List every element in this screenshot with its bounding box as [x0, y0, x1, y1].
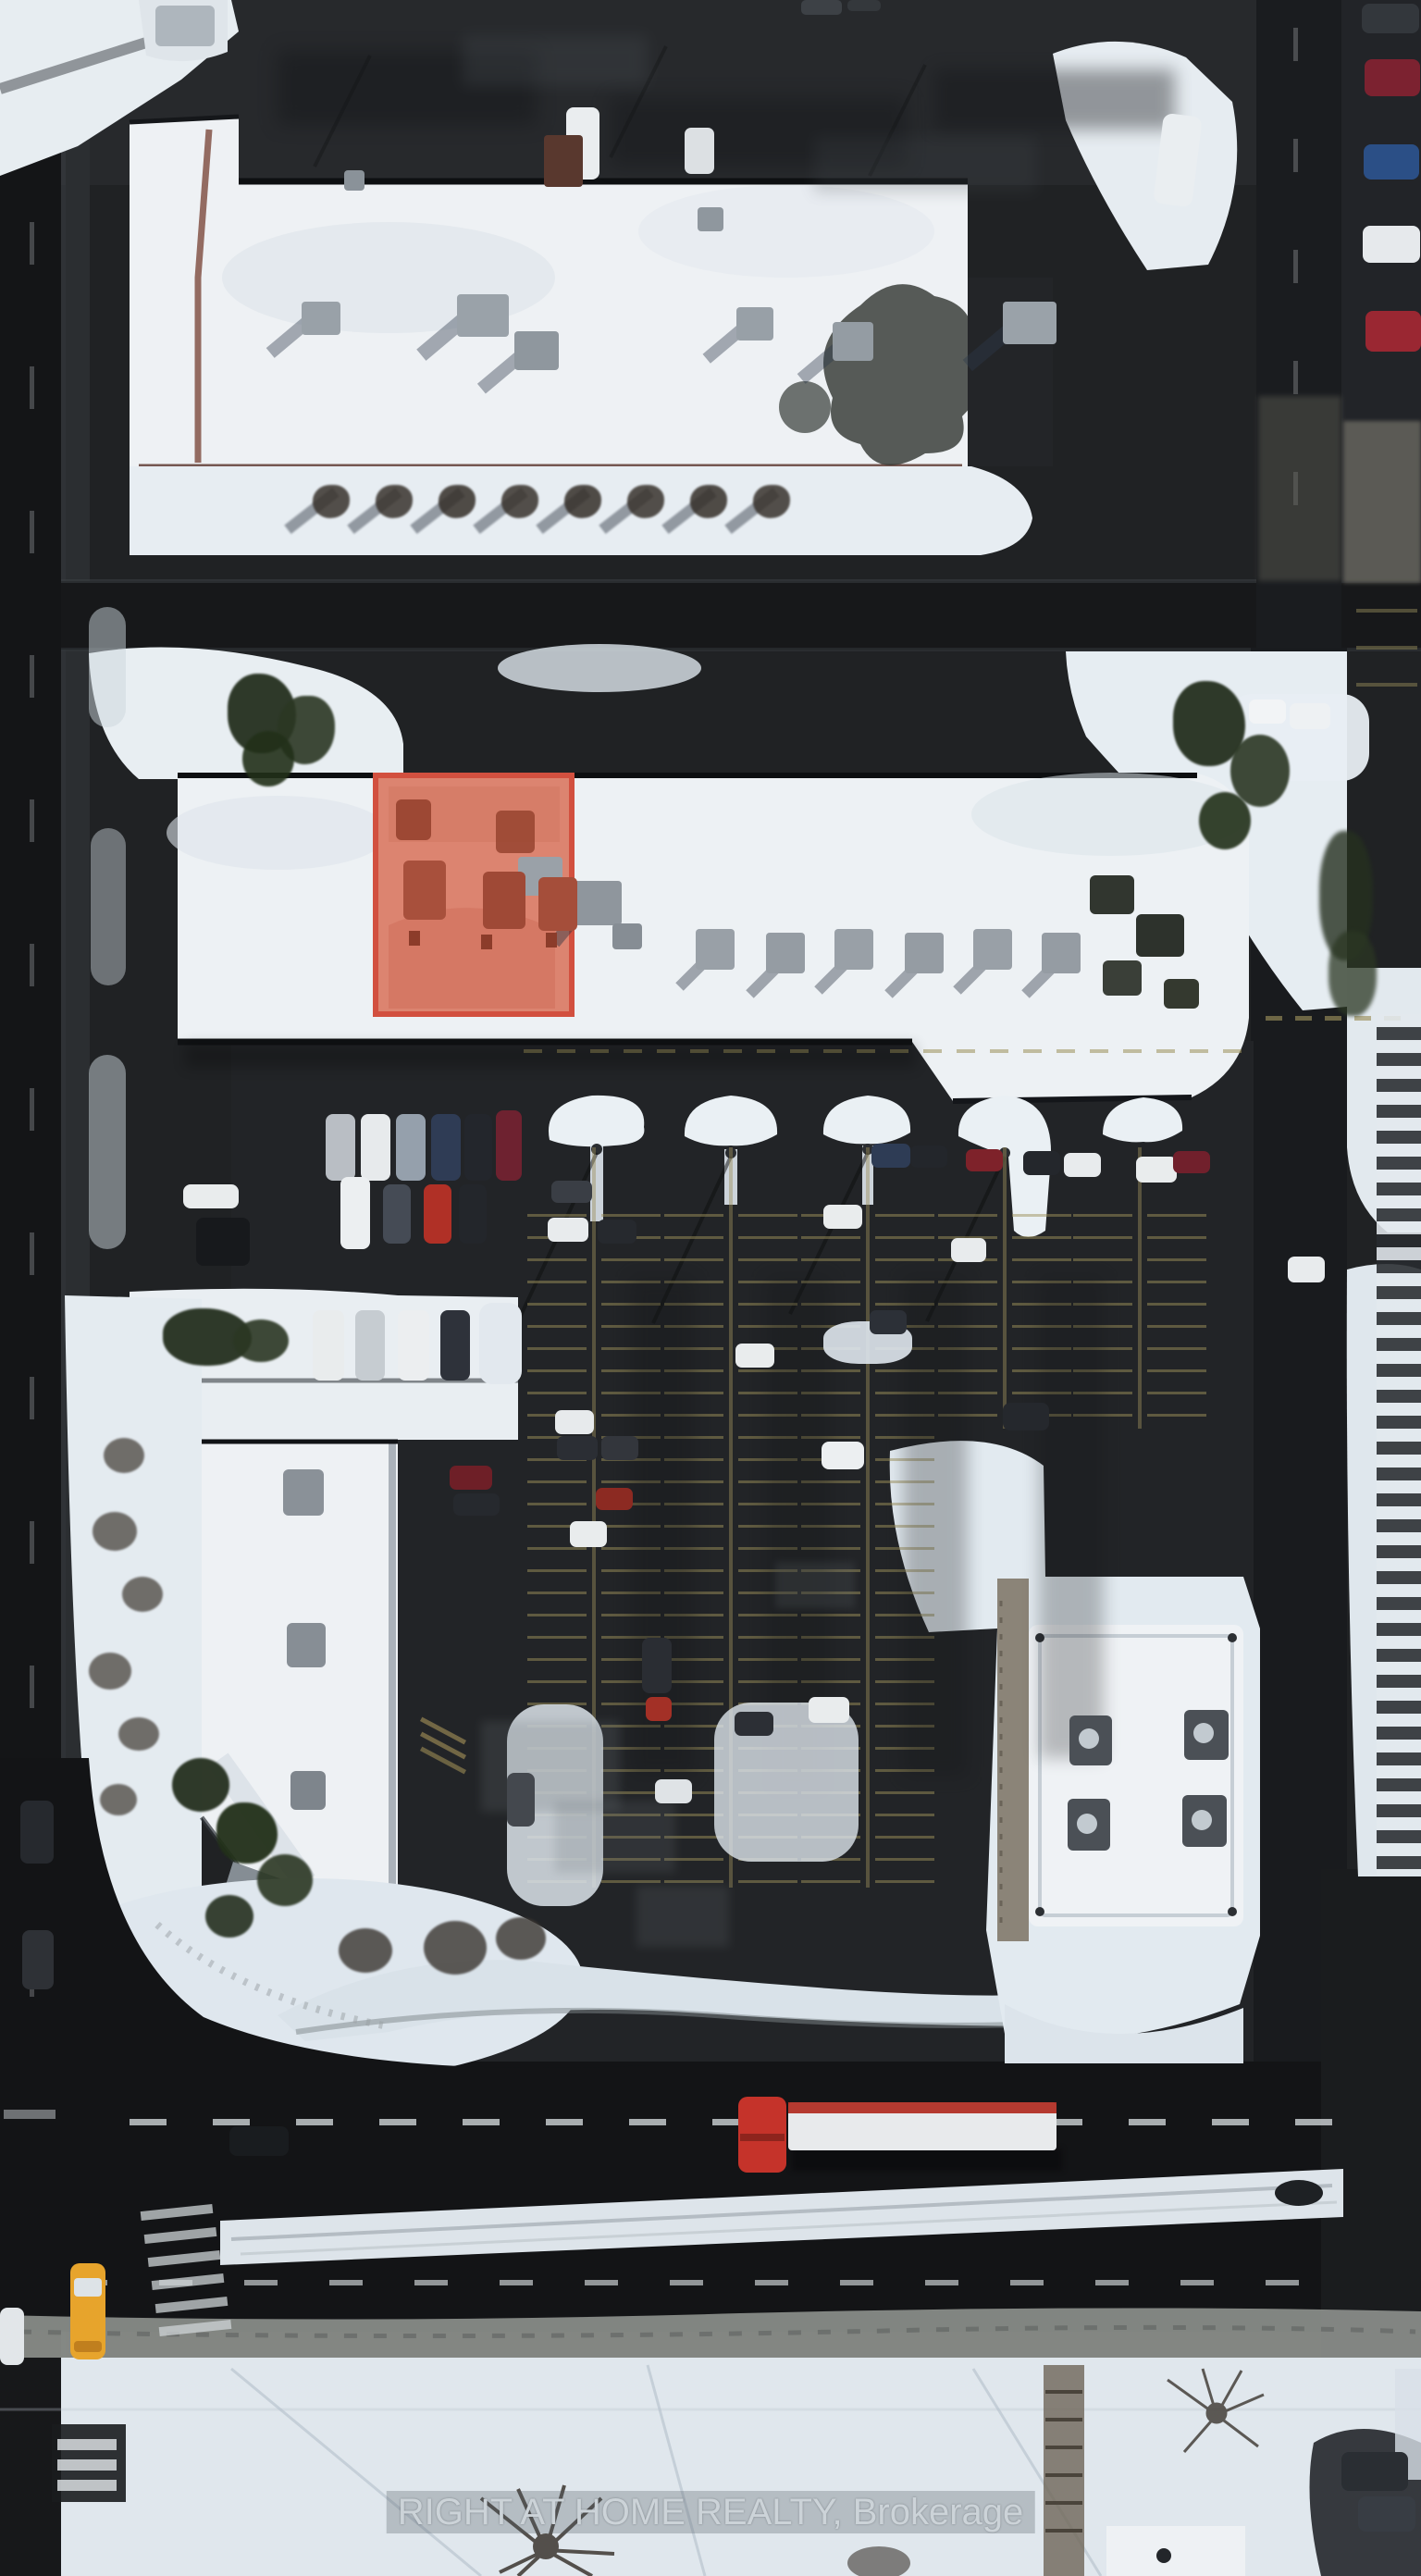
stall-line [527, 1214, 587, 1217]
car [20, 1801, 54, 1864]
car [22, 1930, 54, 1989]
car [396, 1114, 426, 1181]
conifer-tree [205, 1895, 253, 1938]
stall-line [875, 1236, 934, 1239]
car [642, 1638, 672, 1693]
car [464, 1114, 492, 1181]
rooftop-unit [696, 929, 735, 970]
bare-tree [424, 1921, 487, 1975]
car [1249, 700, 1286, 724]
car [910, 1146, 947, 1168]
car [1363, 226, 1420, 263]
lane-dash [840, 2280, 873, 2285]
sidewalk-patch [1343, 421, 1421, 583]
lane-dash [463, 2119, 500, 2125]
rooftop-unit [514, 331, 559, 370]
car [601, 1436, 638, 1460]
car [229, 2126, 289, 2156]
stall-line [664, 1258, 723, 1261]
stall-line [875, 1258, 934, 1261]
lane-dash [30, 222, 34, 265]
car [1064, 1153, 1101, 1177]
lane-dash [585, 2280, 618, 2285]
car [655, 1779, 692, 1803]
rooftop-stack [344, 170, 365, 191]
stall-line [738, 1236, 797, 1239]
conifer-tree [1328, 931, 1377, 1016]
car [735, 1344, 774, 1368]
dirt-smudge [481, 1721, 620, 1812]
roadside-gray [1258, 396, 1341, 581]
stall-line [601, 1880, 661, 1883]
car [479, 1303, 522, 1384]
stall-line [875, 1214, 934, 1217]
stall-line [1147, 1281, 1206, 1283]
rooftop-unit [457, 294, 509, 337]
bare-tree [496, 1917, 546, 1960]
terrain-layer [0, 0, 1421, 2576]
lane-dash [213, 2119, 250, 2125]
stall-line [664, 1236, 723, 1239]
stall-line [1147, 1392, 1206, 1394]
shrub [89, 1653, 131, 1690]
car [548, 1218, 588, 1242]
car [557, 1436, 598, 1460]
car [555, 1410, 594, 1434]
rooftop-fan [1192, 1810, 1212, 1830]
rooftop-unit [612, 923, 642, 949]
lane-patch [814, 137, 1036, 192]
stall-line [1147, 1236, 1206, 1239]
rooftop-unit [572, 881, 622, 925]
lane-dash [30, 799, 34, 842]
car [646, 1697, 672, 1721]
lane-dash [755, 2280, 788, 2285]
stall-line [527, 1636, 587, 1639]
truck-trailer-stripe [788, 2102, 1056, 2113]
truck-shadow [792, 2149, 1062, 2171]
car [801, 0, 842, 15]
car [1365, 311, 1421, 352]
lane-dash [30, 1232, 34, 1275]
watermark-text: RIGHT AT HOME REALTY, Brokerage [387, 2491, 1035, 2533]
conifer-tree [257, 1854, 313, 1906]
car [450, 1466, 492, 1490]
lane-dash [1266, 1016, 1282, 1021]
rooftop-unit [396, 799, 431, 840]
lane-dash [1293, 361, 1298, 394]
stall-line [875, 1858, 934, 1861]
lane-dash [1223, 1049, 1242, 1053]
car [1023, 1151, 1060, 1175]
stall-line [1012, 1236, 1071, 1239]
rooftop-unit [1136, 914, 1184, 957]
stall-line [938, 1214, 997, 1217]
car [361, 1114, 390, 1181]
lane-dash [1295, 1016, 1312, 1021]
lane-dash [957, 1049, 975, 1053]
rooftop-unit [403, 861, 446, 920]
lane-dash [1123, 1049, 1142, 1053]
lane-dash [1180, 2280, 1214, 2285]
stall-line [801, 1258, 860, 1261]
car [398, 1310, 429, 1381]
rooftop-unit [973, 929, 1012, 970]
rooftop-unit [496, 811, 535, 853]
rooftop-unit [1003, 302, 1056, 344]
lane-dash [30, 1521, 34, 1564]
lane-dash [1023, 1049, 1042, 1053]
car [870, 1310, 907, 1334]
shrub [104, 1438, 144, 1473]
stall-line [1012, 1214, 1071, 1217]
car [453, 1493, 500, 1516]
car [570, 1521, 607, 1547]
lane-dash [30, 511, 34, 553]
right-stalls-snow [1377, 1014, 1421, 1875]
rooftop-unit [290, 1771, 326, 1810]
stall-line [1147, 1369, 1206, 1372]
bus-hood [74, 2341, 102, 2352]
rooftop-unit [1090, 875, 1134, 914]
stall-line [527, 1303, 587, 1306]
stall-line [738, 1880, 797, 1883]
lane-dash [1190, 1049, 1208, 1053]
stall-line [527, 1281, 587, 1283]
rooftop-stack [698, 207, 723, 231]
lane-dash [244, 2280, 278, 2285]
building-shadow [185, 1044, 916, 1068]
car [424, 1184, 451, 1244]
rooftop-unit [736, 307, 773, 341]
shrub [100, 1784, 137, 1815]
car [596, 1488, 633, 1510]
stall-line [527, 1547, 587, 1550]
lane-dash [670, 2280, 703, 2285]
car [383, 1184, 411, 1244]
stall-line [1147, 1325, 1206, 1328]
car [507, 1773, 535, 1827]
stall-line [1012, 1258, 1071, 1261]
car [196, 1218, 250, 1266]
stall-center-line [866, 1147, 870, 1888]
stall-line [527, 1658, 587, 1661]
shrub [93, 1512, 137, 1551]
car [0, 2308, 24, 2365]
lane-dash [923, 1049, 942, 1053]
conifer-tree [172, 1758, 229, 1812]
car [340, 1177, 370, 1249]
lane-dash [1156, 1049, 1175, 1053]
lane-dash [500, 2280, 533, 2285]
snow-patch [89, 607, 126, 727]
stall-line [1147, 1214, 1206, 1217]
car [847, 0, 881, 11]
stall-line [601, 1258, 661, 1261]
bus-windshield [74, 2278, 102, 2297]
aisle-shade [1039, 1277, 1104, 1758]
snow-patch [91, 828, 126, 985]
shrub [118, 1717, 159, 1751]
conifer-tree [1199, 792, 1251, 849]
rooftop-unit [905, 933, 944, 973]
stall-line [738, 1258, 797, 1261]
rooftop-unit [302, 302, 340, 335]
stall-center-line [1138, 1147, 1142, 1429]
stall-line [1147, 1258, 1206, 1261]
lane-dash [30, 1666, 34, 1708]
stall-line [527, 1503, 587, 1505]
stall-line [527, 1480, 587, 1483]
lane-mottle [934, 69, 1175, 130]
car [809, 1697, 849, 1723]
stall-line [1147, 1347, 1206, 1350]
rooftop-unit [1103, 960, 1142, 996]
lane-dash [30, 944, 34, 986]
lane-dash [379, 2119, 416, 2125]
lane-dash [629, 2119, 666, 2125]
car [183, 1184, 239, 1208]
rooftop-unit [834, 929, 873, 970]
rooftop-unit [287, 1623, 326, 1667]
snow-patch [89, 1055, 126, 1249]
car [355, 1310, 385, 1381]
stall-line [664, 1880, 723, 1883]
car [440, 1310, 470, 1381]
rooftop-vent [409, 931, 420, 946]
lane-dash [1010, 2280, 1044, 2285]
car [598, 1220, 636, 1244]
stall-line [527, 1347, 587, 1350]
car [735, 1712, 773, 1736]
stall-line [527, 1369, 587, 1372]
stall-line [527, 1258, 587, 1261]
stall-line [527, 1569, 587, 1572]
lane-dash [1295, 2119, 1332, 2125]
conifer-tree [233, 1319, 289, 1362]
bottom-field [0, 2308, 1421, 2576]
stall-line [527, 1680, 587, 1683]
car [966, 1149, 1003, 1171]
lane-dash [1293, 139, 1298, 172]
dirt-smudge [636, 1886, 729, 1947]
aerial-photo: RIGHT AT HOME REALTY, Brokerage [0, 0, 1421, 2576]
stall-line [527, 1614, 587, 1616]
rooftop-unit [1164, 979, 1199, 1009]
rooftop-unit [1042, 933, 1081, 973]
lane-dash [1325, 1016, 1341, 1021]
aisle-shade [903, 1277, 968, 1777]
stall-line [1147, 1303, 1206, 1306]
lane-dash [1090, 1049, 1108, 1053]
car [459, 1184, 487, 1244]
stall-line [664, 1214, 723, 1217]
rooftop-vent [546, 933, 557, 947]
lane-dash [1354, 1016, 1371, 1021]
conifer-tree [242, 731, 294, 786]
stall-line [875, 1791, 934, 1794]
lane-dash [30, 1377, 34, 1419]
lane-patch [463, 35, 648, 86]
bare-tree [339, 1928, 392, 1973]
rooftop-unit [538, 877, 577, 931]
lane-dash [414, 2280, 448, 2285]
stall-center-line [1003, 1147, 1007, 1429]
rooftop-vent [481, 935, 492, 949]
stall-line [1147, 1414, 1206, 1417]
lane-dash [296, 2119, 333, 2125]
car [1364, 144, 1419, 180]
lane-dash [329, 2280, 363, 2285]
stall-line [801, 1236, 860, 1239]
car [496, 1110, 522, 1181]
lane-dash [1293, 250, 1298, 283]
shrub [122, 1577, 163, 1612]
crosswalk-bar [57, 2459, 117, 2471]
car [326, 1114, 355, 1181]
car [1290, 703, 1330, 729]
stall-line [527, 1325, 587, 1328]
dirt-smudge [775, 1562, 855, 1608]
lane-dash [1095, 2280, 1129, 2285]
lane-dash [990, 1049, 1008, 1053]
stall-line [601, 1214, 661, 1217]
car [1288, 1257, 1325, 1282]
car [685, 128, 714, 174]
stall-line [801, 1880, 860, 1883]
lane-dash [30, 655, 34, 698]
car [1362, 4, 1419, 33]
stall-line [875, 1814, 934, 1816]
stall-line [527, 1392, 587, 1394]
car [1003, 1403, 1049, 1430]
lane-dash [546, 2119, 583, 2125]
stall-line [1356, 646, 1417, 650]
rooftop-fan [1077, 1814, 1097, 1834]
lane-dash [1293, 28, 1298, 61]
stop-bar [4, 2110, 56, 2119]
car [871, 1144, 910, 1168]
rooftop-fan [1079, 1728, 1099, 1749]
car [551, 1181, 592, 1203]
car [1136, 1157, 1177, 1183]
stall-line [738, 1214, 797, 1217]
conifer-tree [216, 1802, 278, 1864]
rooftop-unit [483, 872, 525, 929]
lane-dash [1129, 2119, 1166, 2125]
car [431, 1114, 461, 1181]
crosswalk-bar [57, 2439, 117, 2450]
truck-cab-stripe [740, 2134, 785, 2141]
car [951, 1238, 986, 1262]
dumpster [544, 135, 583, 187]
stall-line [875, 1836, 934, 1839]
stall-line [1356, 609, 1417, 613]
car [1358, 2496, 1415, 2532]
stall-line [1073, 1214, 1132, 1217]
rooftop-unit [283, 1469, 324, 1516]
stall-line [1073, 1236, 1132, 1239]
rooftop-unit [833, 322, 873, 361]
crosswalk-bar [57, 2480, 117, 2491]
car [823, 1205, 862, 1229]
rooftop-unit [766, 933, 805, 973]
lane-dash [1056, 1049, 1075, 1053]
stall-line [1073, 1258, 1132, 1261]
car [1341, 2452, 1408, 2491]
lane-dash [30, 1088, 34, 1131]
lane-dash [925, 2280, 958, 2285]
car [822, 1442, 864, 1469]
car [1365, 59, 1420, 96]
lane-dash [1266, 2280, 1299, 2285]
rooftop-fan [1193, 1723, 1214, 1743]
stall-line [527, 1591, 587, 1594]
lane-dash [1212, 2119, 1249, 2125]
stall-line [1356, 683, 1417, 687]
car [1173, 1151, 1210, 1173]
dirt-smudge [555, 1801, 675, 1873]
car [313, 1310, 344, 1381]
stall-line [875, 1880, 934, 1883]
lane-dash [130, 2119, 167, 2125]
lane-dash [30, 366, 34, 409]
